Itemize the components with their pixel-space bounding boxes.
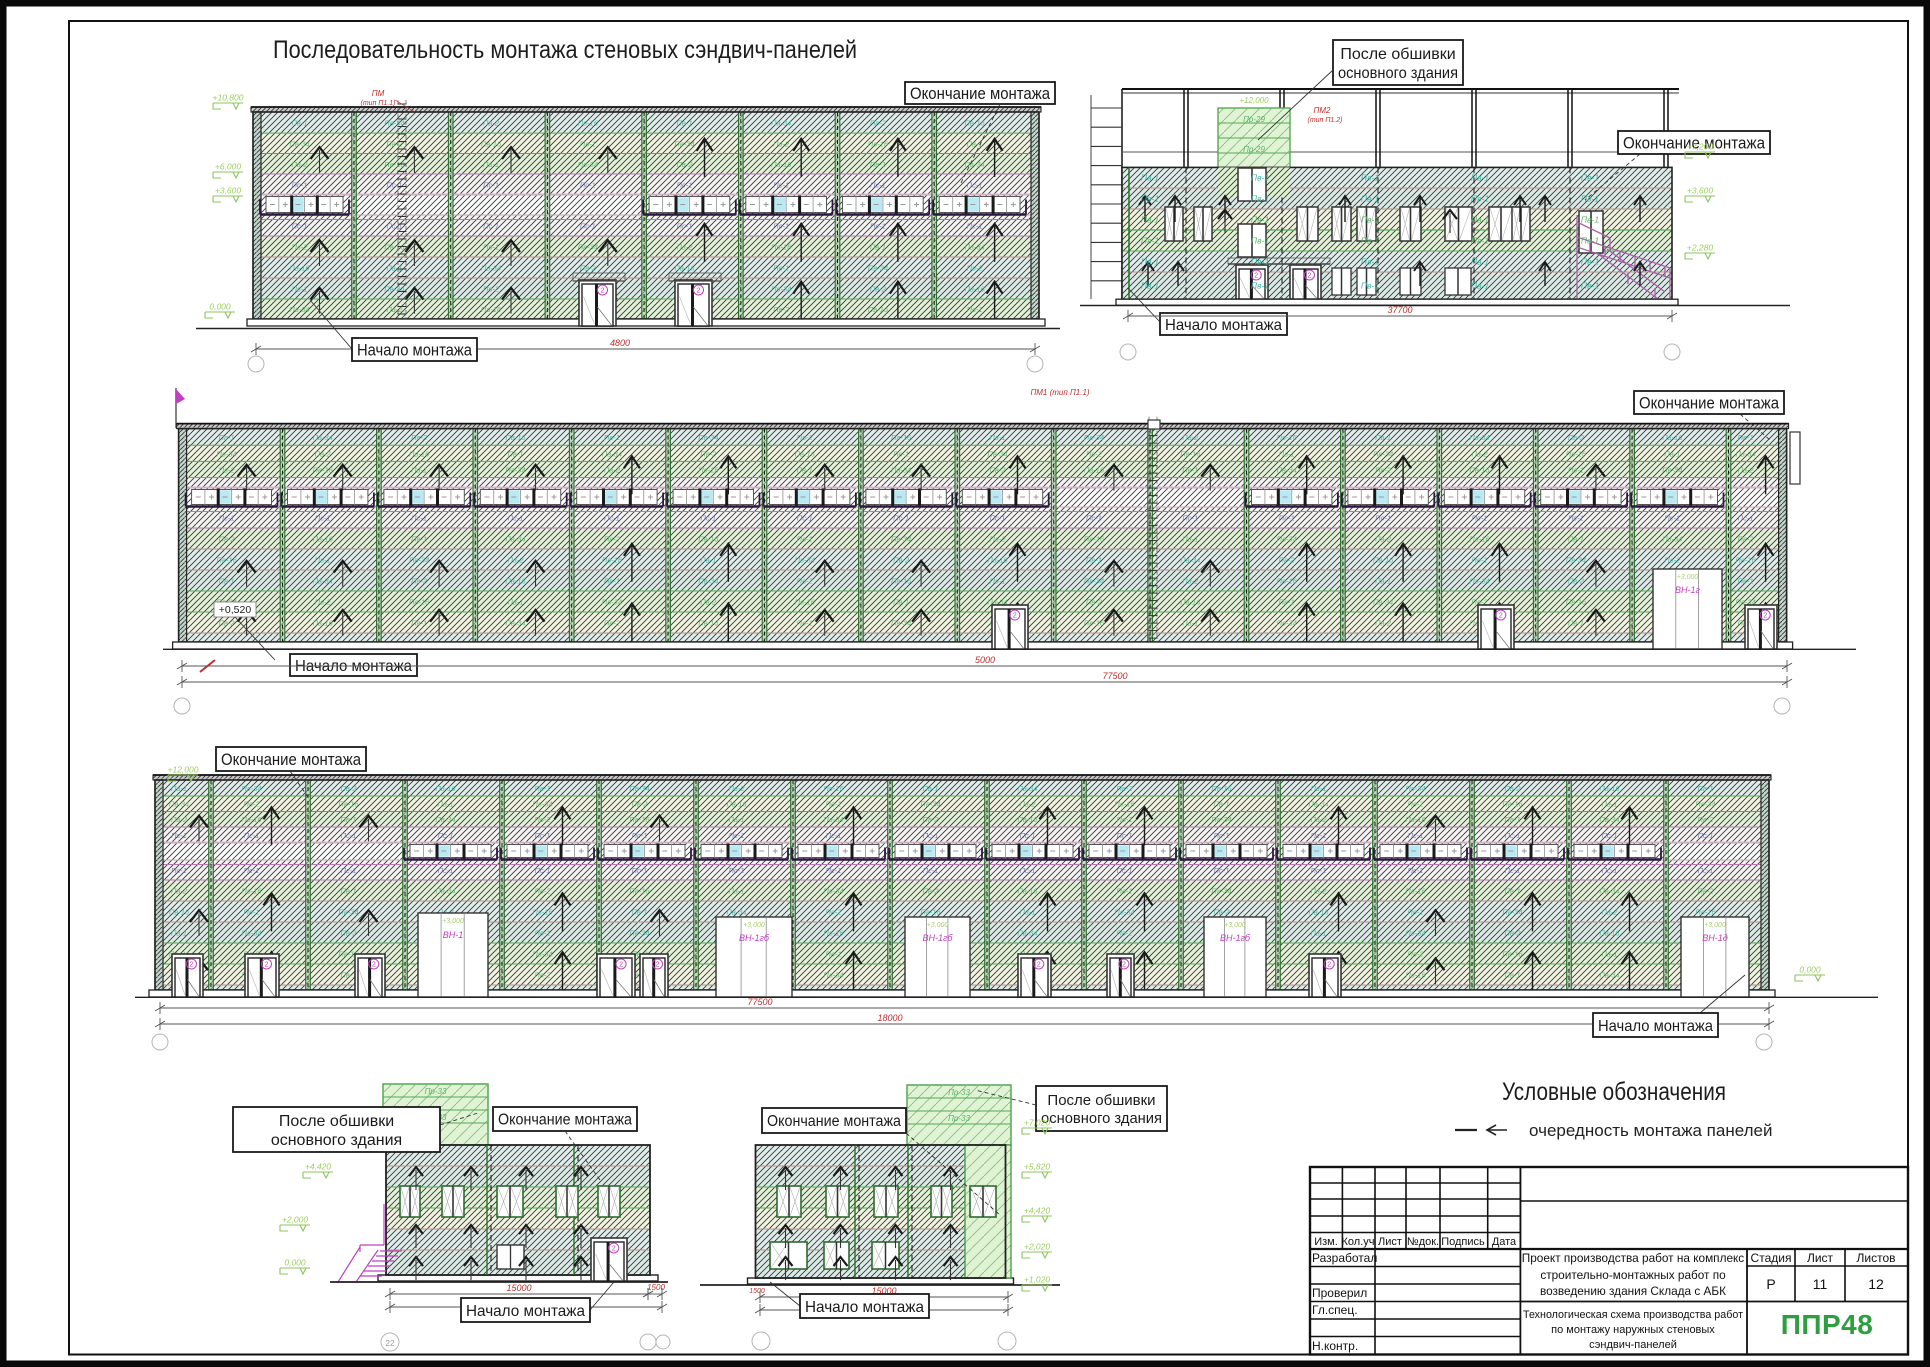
svg-text:Пв-34: Пв-34 [1277,465,1297,474]
svg-text:Пс-1: Пс-1 [580,222,596,231]
svg-text:Пв-1: Пв-1 [1182,619,1198,628]
svg-text:Пв-2: Пв-2 [773,305,790,314]
svg-text:Пс-1: Пс-1 [386,222,402,231]
svg-text:Пв-16: Пв-16 [435,784,456,793]
svg-text:Пв-34: Пв-34 [1180,556,1200,565]
svg-text:+12,000: +12,000 [1239,96,1269,105]
svg-text:Пс-1: Пс-1 [1472,514,1488,523]
svg-text:2: 2 [1327,962,1331,969]
svg-text:ВН-1д: ВН-1д [1702,933,1728,943]
svg-text:Пв-16: Пв-16 [629,815,650,824]
svg-text:Пс-1: Пс-1 [1375,514,1391,523]
svg-text:Пв-34: Пв-34 [241,929,261,938]
svg-text:Пс-1: Пс-1 [315,514,331,523]
svg-text:ППР48: ППР48 [1781,1309,1874,1340]
svg-text:Проверил: Проверил [1312,1286,1367,1300]
svg-text:Дата: Дата [1492,1236,1517,1248]
svg-text:Пв-2: Пв-2 [1213,908,1230,917]
svg-text:Пв-34: Пв-34 [578,243,598,252]
svg-text:Пв-34: Пв-34 [313,433,333,442]
svg-text:Пв-16: Пв-16 [1662,433,1683,442]
svg-text:ПМ: ПМ [372,89,385,98]
svg-text:Пв-1: Пв-1 [1251,173,1269,183]
svg-text:Начало монтажа: Начало монтажа [357,341,473,359]
svg-text:Пв-1: Пв-1 [797,535,813,544]
svg-text:Пв-1: Пв-1 [1361,281,1379,291]
svg-text:Пв-1: Пв-1 [1407,908,1423,917]
svg-text:Пв-1: Пв-1 [604,577,620,586]
svg-text:Пс-1: Пс-1 [923,866,939,875]
svg-text:Пв-34: Пв-34 [532,800,552,809]
svg-text:Пв-34: Пв-34 [964,243,984,252]
svg-text:Пв-34: Пв-34 [1017,784,1037,793]
svg-text:+3,600: +3,600 [1687,186,1714,196]
svg-text:Пв-34: Пв-34 [1469,577,1489,586]
svg-text:Пв-34: Пв-34 [1662,465,1682,474]
svg-text:Пв-2: Пв-2 [1738,535,1755,544]
svg-text:сэндвич-панелей: сэндвич-панелей [1589,1339,1677,1351]
svg-text:Пв-34: Пв-34 [823,887,843,896]
svg-text:+3,000: +3,000 [442,918,464,925]
svg-text:Пв-2: Пв-2 [700,598,717,607]
svg-text:Пв-34: Пв-34 [698,433,718,442]
svg-text:Пс-1: Пс-1 [1117,831,1133,840]
svg-text:Пв-34: Пв-34 [384,285,404,294]
svg-text:Пв-16: Пв-16 [1277,577,1298,586]
svg-text:Пв-34: Пв-34 [1566,556,1586,565]
svg-text:Пв-1: Пв-1 [1581,215,1599,225]
svg-text:Пс-1: Пс-1 [1408,831,1424,840]
svg-text:Пс-1: Пс-1 [483,181,499,190]
svg-text:Пв-16: Пв-16 [1469,465,1490,474]
svg-text:Пв-2: Пв-2 [773,139,790,148]
svg-text:Пв-1: Пв-1 [386,264,402,273]
svg-text:Пв-1: Пв-1 [1568,535,1584,544]
svg-text:Пв-34: Пв-34 [505,465,525,474]
svg-text:Пс-1: Пс-1 [1505,866,1521,875]
svg-text:Пв-1: Пв-1 [1471,236,1489,246]
svg-text:Гл.спец.: Гл.спец. [1312,1303,1358,1317]
svg-text:Пв-1: Пв-1 [1141,215,1159,225]
svg-text:Пв-34: Пв-34 [1599,971,1619,980]
svg-text:0,000: 0,000 [284,1258,306,1268]
svg-text:Пв-1: Пв-1 [728,887,744,896]
svg-text:Пв-16: Пв-16 [169,908,190,917]
svg-text:Пр-29: Пр-29 [1243,145,1265,154]
svg-text:Пс-1: Пс-1 [244,866,260,875]
svg-text:Пв-16: Пв-16 [1084,619,1105,628]
svg-text:Пв-1: Пв-1 [1361,236,1379,246]
svg-text:Пв-34: Пв-34 [795,556,815,565]
svg-text:Начало монтажа: Начало монтажа [805,1299,924,1316]
svg-text:Пв-16: Пв-16 [1084,535,1105,544]
svg-text:Пв-2: Пв-2 [340,929,357,938]
svg-text:Пв-1: Пв-1 [1504,887,1520,896]
svg-text:Пв-16: Пв-16 [771,160,792,169]
svg-text:Пс-1: Пс-1 [411,514,427,523]
svg-text:Пв-2: Пв-2 [171,815,188,824]
svg-text:Пв-2: Пв-2 [534,971,551,980]
svg-text:Пс-1: Пс-1 [870,222,886,231]
svg-text:Р: Р [1766,1276,1775,1292]
svg-text:ВН-1гб: ВН-1гб [1220,933,1251,943]
svg-text:Пр-33: Пр-33 [948,1114,970,1123]
svg-text:Пв-34: Пв-34 [289,305,309,314]
svg-text:Пс-1: Пс-1 [893,514,909,523]
svg-text:Пв-34: Пв-34 [1084,577,1104,586]
svg-text:+7,020: +7,020 [1024,1118,1051,1128]
svg-text:(тип П1.2): (тип П1.2) [1308,117,1343,124]
svg-text:Пв-1: Пв-1 [1471,194,1489,204]
svg-text:Пв-34: Пв-34 [987,449,1007,458]
svg-text:Пв-16: Пв-16 [698,465,719,474]
svg-text:Пв-1: Пв-1 [1471,215,1489,225]
svg-text:Пс-1: Пс-1 [219,514,235,523]
svg-text:Начало монтажа: Начало монтажа [1598,1018,1713,1035]
svg-text:Пв-2: Пв-2 [676,160,693,169]
svg-text:Пс-1: Пс-1 [171,831,187,840]
svg-text:Пв-2: Пв-2 [411,433,428,442]
svg-text:Пв-16: Пв-16 [771,243,792,252]
svg-text:Пв-1: Пв-1 [291,285,307,294]
svg-text:Пв-1: Пв-1 [870,243,886,252]
svg-text:Пв-1: Пв-1 [507,598,523,607]
svg-text:Пв-16: Пв-16 [1405,815,1426,824]
svg-text:Пс-1: Пс-1 [990,514,1006,523]
svg-text:Пв-2: Пв-2 [1697,815,1714,824]
svg-text:Пс-1: Пс-1 [1214,831,1230,840]
svg-text:Пв-2: Пв-2 [483,285,500,294]
svg-text:2: 2 [697,288,701,295]
svg-text:Пв-1: Пв-1 [1361,215,1379,225]
svg-text:Пв-34: Пв-34 [1114,908,1134,917]
svg-text:Пс-1: Пс-1 [292,181,308,190]
svg-text:Пв-1: Пв-1 [534,929,550,938]
svg-text:Пв-16: Пв-16 [1735,556,1756,565]
svg-text:Пв-1: Пв-1 [1738,577,1754,586]
svg-text:Пс-1: Пс-1 [1117,866,1133,875]
svg-text:Пв-34: Пв-34 [823,971,843,980]
svg-text:Пв-34: Пв-34 [771,285,791,294]
svg-text:Пс-1: Пс-1 [1602,866,1618,875]
svg-text:Пс-1: Пс-1 [535,866,551,875]
svg-text:Пв-16: Пв-16 [1695,908,1716,917]
svg-text:Пв-1: Пв-1 [870,160,886,169]
svg-text:Лист: Лист [1807,1251,1834,1265]
svg-text:Пс-1: Пс-1 [967,222,983,231]
svg-text:основного здания: основного здания [271,1132,402,1149]
svg-text:Пс-1: Пс-1 [1214,866,1230,875]
svg-text:Пв-2: Пв-2 [1086,598,1103,607]
svg-text:Окончание монтажа: Окончание монтажа [221,751,362,769]
svg-text:Пв-1: Пв-1 [1581,281,1599,291]
svg-text:Пв-16: Пв-16 [1469,535,1490,544]
svg-text:Пв-16: Пв-16 [313,535,334,544]
svg-text:Пв-34: Пв-34 [505,619,525,628]
svg-text:Пс-1: Пс-1 [171,866,187,875]
svg-text:Пв-1: Пв-1 [1141,236,1159,246]
svg-text:Пв-16: Пв-16 [1308,908,1329,917]
svg-text:Пв-34: Пв-34 [1211,815,1231,824]
svg-text:Пс-1: Пс-1 [604,514,620,523]
svg-text:Пс-1: Пс-1 [438,866,454,875]
svg-text:Пв-34: Пв-34 [698,577,718,586]
svg-text:Пв-2: Пв-2 [604,535,621,544]
svg-text:22: 22 [386,1339,395,1348]
svg-text:Пв-1: Пв-1 [411,465,427,474]
svg-text:Пс-1: Пс-1 [1505,831,1521,840]
svg-text:Пс-1: Пс-1 [292,222,308,231]
svg-text:Пв-34: Пв-34 [868,264,888,273]
svg-text:Пв-16: Пв-16 [795,449,816,458]
svg-text:Пв-34: Пв-34 [1735,449,1755,458]
svg-text:2: 2 [1308,273,1312,280]
svg-text:+1,020: +1,020 [1024,1275,1051,1285]
svg-text:Пв-2: Пв-2 [870,285,887,294]
svg-text:Пс-1: Пс-1 [677,222,693,231]
svg-text:Пв-16: Пв-16 [1373,556,1394,565]
svg-text:Разработал: Разработал [1312,1251,1377,1265]
svg-text:77500: 77500 [747,997,772,1007]
svg-text:Окончание монтажа: Окончание монтажа [498,1112,632,1129]
svg-text:Пв-16: Пв-16 [698,619,719,628]
svg-text:Пв-2: Пв-2 [171,887,188,896]
svg-text:12: 12 [1868,1276,1884,1292]
svg-text:Пв-16: Пв-16 [1277,433,1298,442]
svg-text:Пв-16: Пв-16 [481,305,502,314]
svg-text:Пв-1: Пв-1 [1581,236,1599,246]
svg-text:Пв-1: Пв-1 [1361,257,1379,267]
svg-text:Пв-1: Пв-1 [1664,449,1680,458]
svg-text:Пв-34: Пв-34 [1373,449,1393,458]
svg-text:Пв-34: Пв-34 [1469,433,1489,442]
svg-text:После обшивки: После обшивки [1047,1092,1155,1109]
svg-text:ПМ2: ПМ2 [1314,106,1331,115]
svg-text:Лист: Лист [1378,1236,1402,1248]
svg-text:Пв-1: Пв-1 [1141,281,1159,291]
svg-text:2: 2 [1013,613,1017,620]
svg-text:Пв-34: Пв-34 [216,449,236,458]
svg-text:Пв-2: Пв-2 [291,243,308,252]
svg-text:Пс-1: Пс-1 [1311,831,1327,840]
svg-text:Пв-16: Пв-16 [1566,449,1587,458]
svg-text:Пв-16: Пв-16 [698,535,719,544]
svg-text:2: 2 [601,288,605,295]
svg-text:Пс-1: Пс-1 [870,181,886,190]
svg-text:Пв-1: Пв-1 [893,598,909,607]
svg-text:Пс-1: Пс-1 [1182,514,1198,523]
svg-text:Пс-1: Пс-1 [923,831,939,840]
svg-text:Пс-1: Пс-1 [1602,831,1618,840]
svg-text:Пв-1: Пв-1 [1182,535,1198,544]
svg-text:Пв-2: Пв-2 [1568,577,1585,586]
svg-text:Пв-34: Пв-34 [891,619,911,628]
svg-text:Пв-34: Пв-34 [891,535,911,544]
svg-text:ВН-1: ВН-1 [443,930,464,940]
svg-text:Пв-16: Пв-16 [964,285,985,294]
svg-text:Окончание монтажа: Окончание монтажа [767,1113,901,1130]
svg-text:Пв-1: Пв-1 [797,619,813,628]
svg-text:Пс-1: Пс-1 [773,181,789,190]
svg-text:Пс-1: Пс-1 [244,831,260,840]
svg-text:Пс-1: Пс-1 [1020,866,1036,875]
svg-text:Пс-1: Пс-1 [508,514,524,523]
svg-text:Пв-2: Пв-2 [825,908,842,917]
svg-text:Пв-16: Пв-16 [1180,449,1201,458]
svg-text:1500: 1500 [749,1288,765,1295]
svg-text:Пв-2: Пв-2 [1471,449,1488,458]
svg-text:Пв-1: Пв-1 [1361,194,1379,204]
svg-text:Пв-2: Пв-2 [797,433,814,442]
svg-text:Пв-2: Пв-2 [700,449,717,458]
svg-text:Пв-16: Пв-16 [868,305,889,314]
svg-text:Пс-1: Пс-1 [1279,514,1295,523]
svg-text:Пв-2: Пв-2 [1116,929,1133,938]
svg-text:Пв-16: Пв-16 [1599,929,1620,938]
svg-text:+10,800: +10,800 [213,93,244,103]
svg-text:2: 2 [1499,613,1503,620]
svg-text:Пв-16: Пв-16 [1114,800,1135,809]
svg-text:Пв-34: Пв-34 [602,449,622,458]
svg-text:Пв-34: Пв-34 [1211,887,1231,896]
svg-text:Пв-1: Пв-1 [989,577,1005,586]
svg-text:Пв-2: Пв-2 [1019,800,1036,809]
svg-text:Пв-1: Пв-1 [922,784,938,793]
svg-text:ПМ1 (тип П1.1): ПМ1 (тип П1.1) [1030,388,1089,397]
svg-text:Пв-2: Пв-2 [291,160,308,169]
svg-text:Пв-1: Пв-1 [604,433,620,442]
svg-text:Пв-34: Пв-34 [964,160,984,169]
svg-text:Пв-1: Пв-1 [507,449,523,458]
svg-text:ВН-1г: ВН-1г [1675,585,1701,595]
svg-text:Пв-2: Пв-2 [534,887,551,896]
svg-text:+0,520: +0,520 [219,604,252,616]
svg-text:Пв-16: Пв-16 [891,433,912,442]
svg-text:Пв-34: Пв-34 [1599,887,1619,896]
svg-text:(тип П1.1): (тип П1.1) [361,100,396,107]
svg-text:Пв-34: Пв-34 [1373,598,1393,607]
svg-text:Пв-2: Пв-2 [989,465,1006,474]
svg-text:Подпись: Подпись [1441,1236,1485,1248]
svg-text:Пв-1: Пв-1 [1251,215,1269,225]
svg-text:Пс-1: Пс-1 [729,831,745,840]
svg-text:Пв-1: Пв-1 [340,971,356,980]
svg-text:Пв-34: Пв-34 [674,139,694,148]
svg-text:2: 2 [190,962,194,969]
svg-text:Пв-1: Пв-1 [1251,281,1269,291]
svg-text:Пв-2: Пв-2 [411,577,428,586]
svg-text:18000: 18000 [877,1013,902,1023]
svg-text:Пв-2: Пв-2 [1375,535,1392,544]
svg-text:Пв-2: Пв-2 [1664,556,1681,565]
svg-text:Пв-2: Пв-2 [870,119,887,128]
svg-text:Пв-16: Пв-16 [313,619,334,628]
svg-text:Пв-1: Пв-1 [676,119,692,128]
svg-text:Пв-2: Пв-2 [1182,433,1199,442]
svg-text:Пв-2: Пв-2 [728,784,745,793]
svg-text:Пв-16: Пв-16 [920,908,941,917]
svg-text:Пв-2: Пв-2 [1504,929,1521,938]
svg-text:Пв-16: Пв-16 [1017,887,1038,896]
svg-text:Пв-1: Пв-1 [1375,577,1391,586]
svg-text:Пс-1: Пс-1 [773,222,789,231]
svg-text:Пв-1: Пв-1 [1361,173,1379,183]
svg-text:Пв-34: Пв-34 [602,598,622,607]
svg-text:Пв-34: Пв-34 [1695,800,1715,809]
svg-text:Изм.: Изм. [1314,1236,1338,1248]
svg-text:Пв-1: Пв-1 [291,119,307,128]
svg-text:Пс-1: Пс-1 [826,866,842,875]
svg-text:Пв-16: Пв-16 [795,598,816,607]
svg-text:+3,000: +3,000 [1704,922,1726,929]
svg-text:+7,200: +7,200 [1687,142,1714,152]
svg-text:+6,000: +6,000 [215,162,242,172]
svg-text:Пв-2: Пв-2 [797,577,814,586]
svg-text:Пв-1: Пв-1 [1310,784,1326,793]
svg-text:Пв-16: Пв-16 [891,577,912,586]
svg-text:Пв-16: Пв-16 [1599,784,1620,793]
svg-text:Последовательность монтажа сте: Последовательность монтажа стеновых сэнд… [273,36,857,64]
svg-text:Пв-16: Пв-16 [629,887,650,896]
svg-text:Пв-1: Пв-1 [728,815,744,824]
svg-text:+2,000: +2,000 [282,1215,309,1225]
svg-text:Пв-2: Пв-2 [967,264,984,273]
svg-text:Пв-1: Пв-1 [171,929,187,938]
svg-text:Пс-1: Пс-1 [632,831,648,840]
svg-text:Пв-1: Пв-1 [1471,281,1489,291]
svg-text:Пв-1: Пв-1 [1279,598,1295,607]
svg-text:Пв-1: Пв-1 [797,465,813,474]
svg-text:Пв-1: Пв-1 [825,950,841,959]
svg-text:Пв-2: Пв-2 [534,815,551,824]
svg-text:Пв-34: Пв-34 [481,264,501,273]
svg-text:Пв-1: Пв-1 [340,887,356,896]
svg-text:Пв-2: Пв-2 [604,619,621,628]
svg-text:Пв-34: Пв-34 [726,908,746,917]
svg-text:Пв-2: Пв-2 [219,535,236,544]
svg-text:Пв-2: Пв-2 [483,119,500,128]
svg-text:Окончание монтажа: Окончание монтажа [910,85,1051,103]
svg-text:Пв-34: Пв-34 [1599,815,1619,824]
svg-text:Пв-2: Пв-2 [1697,887,1714,896]
svg-text:Пв-2: Пв-2 [1310,887,1327,896]
svg-text:Пс-1: Пс-1 [580,181,596,190]
svg-text:Пв-34: Пв-34 [1084,433,1104,442]
svg-text:+3,000: +3,000 [927,922,949,929]
svg-text:Пв-2: Пв-2 [315,449,332,458]
svg-text:Пс-1: Пс-1 [1698,866,1714,875]
svg-text:Пв-1: Пв-1 [219,577,235,586]
svg-text:Пв-16: Пв-16 [987,556,1008,565]
svg-text:+2,020: +2,020 [1024,1242,1051,1252]
svg-text:Пв-1: Пв-1 [1279,449,1295,458]
svg-text:Пв-16: Пв-16 [1502,950,1523,959]
svg-text:Проект производства работ на к: Проект производства работ на комплекс [1522,1251,1745,1265]
svg-text:Пв-1: Пв-1 [1581,173,1599,183]
svg-text:Пв-34: Пв-34 [532,950,552,959]
svg-text:Пр-33: Пр-33 [425,1087,447,1096]
svg-text:возведению здания Склада с АБК: возведению здания Склада с АБК [1540,1284,1726,1298]
svg-text:Пв-34: Пв-34 [823,815,843,824]
svg-text:Пв-16: Пв-16 [1084,465,1105,474]
svg-text:4800: 4800 [610,338,630,348]
svg-text:Листов: Листов [1857,1251,1896,1265]
svg-text:Пв-2: Пв-2 [219,619,236,628]
svg-text:Пв-1: Пв-1 [1568,465,1584,474]
svg-text:Пс-1: Пс-1 [677,181,693,190]
svg-text:Пв-1: Пв-1 [1738,433,1754,442]
svg-text:2: 2 [1037,962,1041,969]
